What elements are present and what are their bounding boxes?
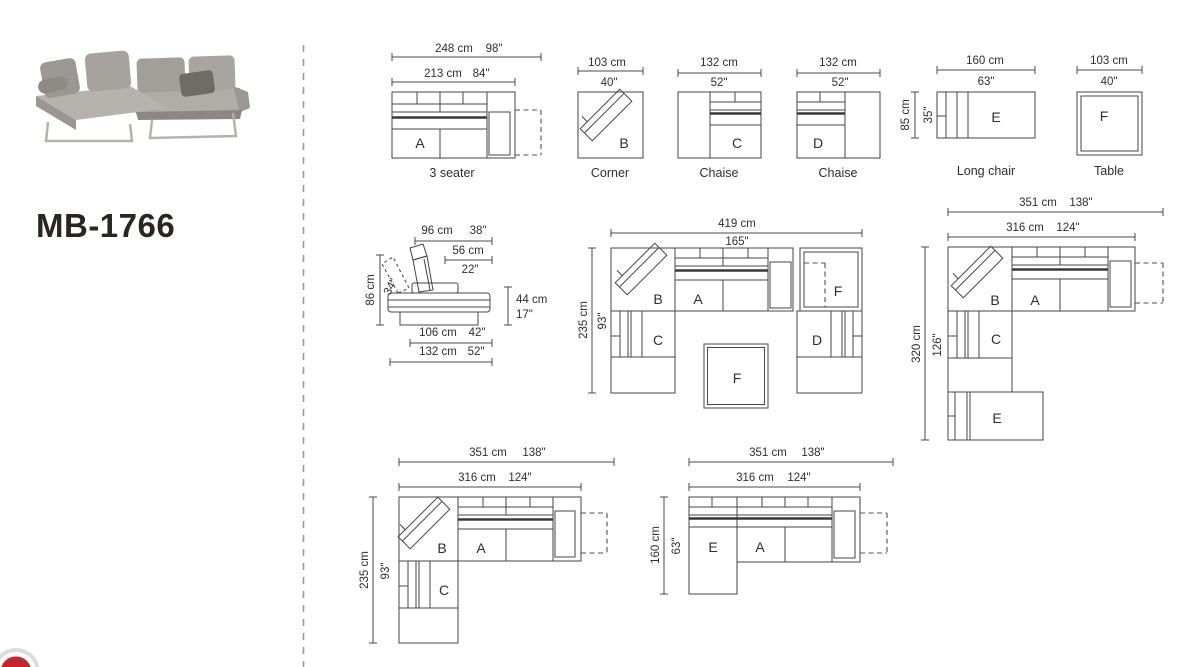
- cfg-u-label-a: A: [693, 291, 703, 307]
- cfg-cc-width-in: 138": [522, 447, 545, 459]
- cfg-cc-depth-in: 93": [380, 563, 392, 580]
- spec-sheet-page: MB-1766 248 cm 98" 213 cm 84" A 3 seater…: [0, 0, 1200, 667]
- cfg-cc-label-b: B: [437, 540, 446, 556]
- sv-base-depth-cm: 106 cm: [419, 327, 457, 339]
- cfg-u-label-b: B: [653, 291, 662, 307]
- cfg-cl-depth-in: 126": [932, 333, 944, 356]
- product-photo: [36, 50, 250, 141]
- cfg-cl-width-in: 138": [1069, 197, 1092, 209]
- cfg-cl-label-e: E: [992, 410, 1001, 426]
- unit-c-cm: 132 cm: [700, 57, 738, 69]
- unit-a-caption: 3 seater: [429, 166, 474, 180]
- cfg-u-width-in: 165": [725, 236, 748, 248]
- cfg-u-label-f-right: F: [834, 283, 843, 299]
- cfg-cc-label-a: A: [476, 540, 486, 556]
- unit-b-cm: 103 cm: [588, 57, 626, 69]
- sv-seat-height-cm: 44 cm: [516, 294, 547, 306]
- cfg-cc-label-c: C: [439, 582, 449, 598]
- sv-seat-depth-in: 22": [462, 264, 479, 276]
- cfg-u-label-d: D: [812, 332, 822, 348]
- cfg-u-depth-cm: 235 cm: [578, 301, 590, 339]
- unit-a-inner-cm: 213 cm: [424, 68, 462, 80]
- unit-c-letter: C: [732, 135, 742, 151]
- unit-b-letter: B: [619, 135, 628, 151]
- unit-a-diagram: 248 cm 98" 213 cm 84" A 3 seater: [392, 43, 541, 180]
- unit-d-diagram: 132 cm 52" D Chaise: [797, 57, 880, 180]
- unit-d-letter: D: [813, 135, 823, 151]
- unit-c-diagram: 132 cm 52" C Chaise: [678, 57, 761, 180]
- unit-b-in: 40": [601, 77, 618, 89]
- unit-f-diagram: 103 cm 40" F Table: [1077, 55, 1142, 178]
- config-corner-chaise: 351 cm 138" 316 cm 124" 235 cm 93" B A C: [359, 447, 614, 643]
- cfg-cl-inner-cm: 316 cm: [1006, 222, 1044, 234]
- cfg-ls-label-e: E: [708, 539, 717, 555]
- sv-total-depth-cm: 132 cm: [419, 346, 457, 358]
- cfg-cc-depth-cm: 235 cm: [359, 551, 371, 589]
- cfg-cl-depth-cm: 320 cm: [911, 325, 923, 363]
- cfg-ls-inner-in: 124": [787, 472, 810, 484]
- unit-a-letter: A: [415, 135, 425, 151]
- cfg-cl-width-cm: 351 cm: [1019, 197, 1057, 209]
- cfg-ls-depth-in: 63": [671, 538, 683, 555]
- unit-e-diagram: 160 cm 63" 85 cm 35" E Long chair: [900, 55, 1035, 178]
- cfg-u-label-c: C: [653, 332, 663, 348]
- unit-f-in: 40": [1101, 76, 1118, 88]
- chat-bubble-button[interactable]: [0, 648, 40, 667]
- unit-d-cm: 132 cm: [819, 57, 857, 69]
- cfg-u-width-cm: 419 cm: [718, 218, 756, 230]
- unit-a-outer-in: 98": [486, 43, 503, 55]
- cfg-cl-inner-in: 124": [1056, 222, 1079, 234]
- cfg-cl-label-b: B: [990, 292, 999, 308]
- cfg-ls-inner-cm: 316 cm: [736, 472, 774, 484]
- unit-b-caption: Corner: [591, 166, 629, 180]
- config-u-shape: 419 cm 165" 235 cm 93" B A F C F D: [578, 218, 862, 408]
- sv-back-width-cm: 96 cm: [421, 225, 452, 237]
- unit-c-caption: Chaise: [700, 166, 739, 180]
- cfg-cl-label-c: C: [991, 331, 1001, 347]
- unit-e-depth-in: 35": [923, 107, 935, 124]
- cfg-u-label-f-center: F: [733, 370, 742, 386]
- config-corner-longchair: 351 cm 138" 316 cm 124" 320 cm 126" B A …: [911, 197, 1163, 440]
- sv-base-depth-in: 42": [469, 327, 486, 339]
- cfg-cl-label-a: A: [1030, 292, 1040, 308]
- unit-b-diagram: 103 cm 40" B Corner: [575, 57, 643, 180]
- unit-d-in: 52": [832, 77, 849, 89]
- unit-f-letter: F: [1100, 108, 1109, 124]
- sv-height-cm: 86 cm: [365, 274, 377, 305]
- sv-total-depth-in: 52": [468, 346, 485, 358]
- cfg-cc-inner-in: 124": [508, 472, 531, 484]
- cfg-ls-width-cm: 351 cm: [749, 447, 787, 459]
- sv-seat-height-in: 17": [516, 309, 533, 321]
- unit-e-caption: Long chair: [957, 164, 1015, 178]
- cfg-cc-inner-cm: 316 cm: [458, 472, 496, 484]
- unit-a-inner-in: 84": [473, 68, 490, 80]
- cfg-ls-label-a: A: [755, 539, 765, 555]
- cfg-cc-width-cm: 351 cm: [469, 447, 507, 459]
- unit-e-depth-cm: 85 cm: [900, 99, 912, 130]
- sv-back-width-in: 38": [470, 225, 487, 237]
- cfg-ls-depth-cm: 160 cm: [650, 526, 662, 564]
- unit-f-caption: Table: [1094, 164, 1124, 178]
- unit-a-outer-cm: 248 cm: [435, 43, 473, 55]
- unit-e-letter: E: [991, 109, 1000, 125]
- side-view-diagram: 96 cm 38" 56 cm 22" 86 cm 34" 44 cm 17" …: [365, 225, 547, 366]
- cfg-u-depth-in: 93": [597, 313, 609, 330]
- product-model: MB-1766: [36, 207, 175, 244]
- config-longchair-sofa: 351 cm 138" 316 cm 124" 160 cm 63" E A: [650, 447, 893, 594]
- unit-e-in: 63": [978, 76, 995, 88]
- cfg-ls-width-in: 138": [801, 447, 824, 459]
- unit-e-cm: 160 cm: [966, 55, 1004, 67]
- unit-d-caption: Chaise: [819, 166, 858, 180]
- unit-c-in: 52": [711, 77, 728, 89]
- sv-seat-depth-cm: 56 cm: [452, 245, 483, 257]
- unit-f-cm: 103 cm: [1090, 55, 1128, 67]
